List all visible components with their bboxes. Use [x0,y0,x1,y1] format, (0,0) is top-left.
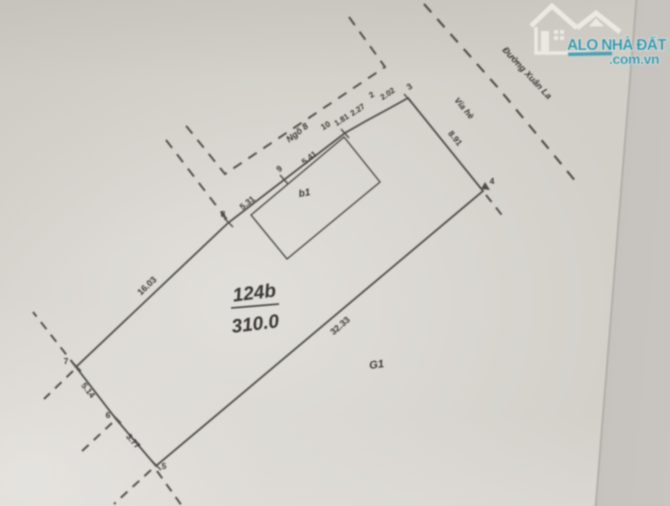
svg-text:2.27: 2.27 [349,102,367,118]
svg-text:310.0: 310.0 [230,311,280,338]
svg-text:3: 3 [405,81,415,92]
svg-text:16.03: 16.03 [135,274,158,297]
svg-text:.com.vn: .com.vn [609,51,659,67]
svg-text:10: 10 [319,119,332,133]
svg-text:7: 7 [64,356,69,366]
svg-text:8.91: 8.91 [446,129,464,148]
svg-text:5.41: 5.41 [300,148,319,166]
svg-text:1.81: 1.81 [333,112,351,128]
svg-text:5: 5 [162,461,167,471]
svg-text:4: 4 [490,176,495,186]
svg-text:Vỉa hè: Vỉa hè [452,95,476,121]
svg-text:b1: b1 [298,187,312,200]
svg-text:9: 9 [274,163,284,174]
svg-text:2.02: 2.02 [379,86,397,102]
svg-text:2: 2 [367,90,376,100]
svg-text:5.14: 5.14 [79,381,97,400]
svg-text:Ngõ 8: Ngõ 8 [284,121,310,144]
svg-text:124b: 124b [232,280,278,306]
svg-text:G1: G1 [368,358,384,372]
svg-text:8: 8 [221,209,226,219]
svg-text:6: 6 [106,410,111,420]
